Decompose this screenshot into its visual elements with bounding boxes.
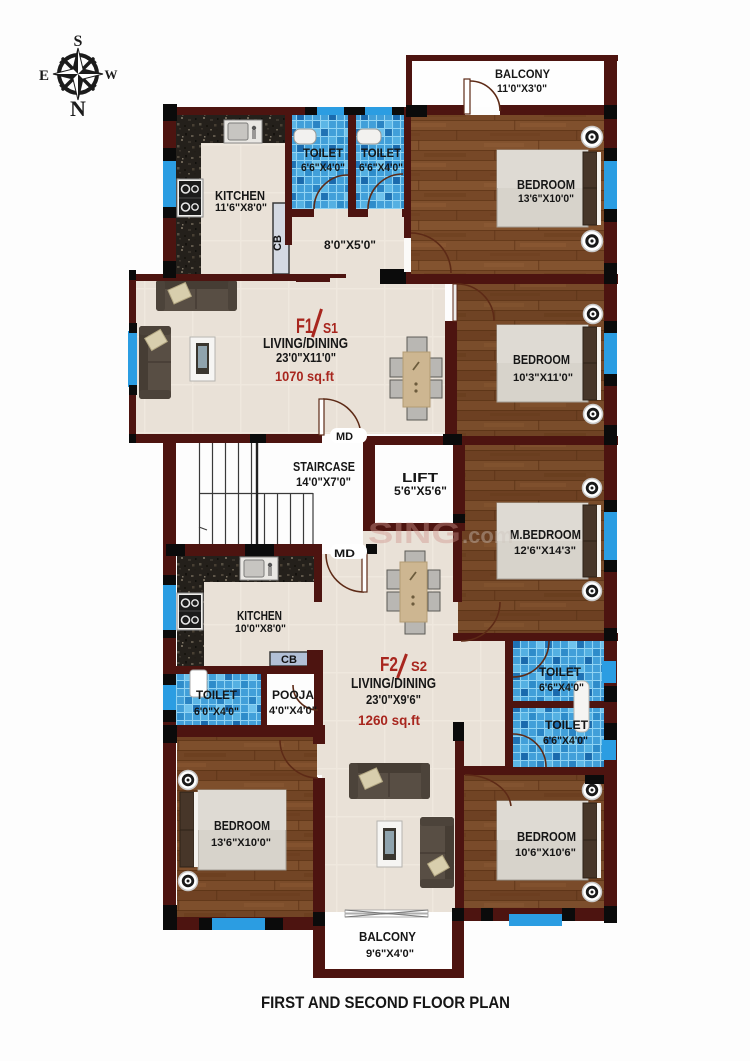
svg-text:MD: MD <box>336 431 353 443</box>
svg-text:BEDROOM: BEDROOM <box>214 819 270 833</box>
svg-text:BALCONY: BALCONY <box>359 930 417 944</box>
svg-text:TOILET: TOILET <box>303 146 344 160</box>
svg-text:FIRST AND SECOND FLOOR PLAN: FIRST AND SECOND FLOOR PLAN <box>261 993 510 1012</box>
svg-text:11'6"X8'0": 11'6"X8'0" <box>215 202 267 214</box>
svg-text:.com: .com <box>462 523 513 548</box>
svg-text:TOILET: TOILET <box>361 146 402 160</box>
svg-text:1260 sq.ft: 1260 sq.ft <box>358 712 420 728</box>
svg-text:TOILET: TOILET <box>539 665 582 679</box>
svg-text:CB: CB <box>281 654 297 666</box>
svg-text:MD: MD <box>334 548 355 560</box>
svg-text:SING: SING <box>368 517 461 550</box>
svg-text:TOILET: TOILET <box>196 688 238 702</box>
svg-text:6'6"X4'0": 6'6"X4'0" <box>543 735 588 747</box>
svg-text:N: N <box>70 96 86 121</box>
svg-text:BALCONY: BALCONY <box>495 67 550 81</box>
svg-text:BEDROOM: BEDROOM <box>517 178 575 192</box>
svg-text:F2: F2 <box>380 654 398 676</box>
svg-text:M.BEDROOM: M.BEDROOM <box>510 528 581 542</box>
svg-text:W: W <box>105 67 118 82</box>
svg-text:CB: CB <box>272 235 284 251</box>
svg-text:23'0"X9'6": 23'0"X9'6" <box>366 692 421 707</box>
svg-text:13'6"X10'0": 13'6"X10'0" <box>518 193 574 205</box>
svg-text:STAIRCASE: STAIRCASE <box>293 460 355 474</box>
svg-text:LIVING/DINING: LIVING/DINING <box>351 675 436 692</box>
svg-text:BEDROOM: BEDROOM <box>513 353 570 367</box>
svg-text:14'0"X7'0": 14'0"X7'0" <box>296 477 351 489</box>
svg-text:10'0"X8'0": 10'0"X8'0" <box>235 623 286 635</box>
svg-text:10'3"X11'0": 10'3"X11'0" <box>513 372 573 384</box>
svg-text:4'0"X4'0": 4'0"X4'0" <box>269 705 317 717</box>
svg-text:KITCHEN: KITCHEN <box>215 189 265 203</box>
svg-text:12'6"X14'3": 12'6"X14'3" <box>514 545 576 557</box>
svg-text:1070 sq.ft: 1070 sq.ft <box>275 368 334 384</box>
svg-text:TOILET: TOILET <box>545 718 589 732</box>
svg-text:LIFT: LIFT <box>402 470 438 485</box>
svg-text:11'0"X3'0": 11'0"X3'0" <box>497 83 547 95</box>
svg-text:8'0"X5'0": 8'0"X5'0" <box>324 238 376 252</box>
svg-text:9'6"X4'0": 9'6"X4'0" <box>366 948 414 960</box>
svg-text:6'6"X4'0": 6'6"X4'0" <box>359 162 403 174</box>
svg-text:BEDROOM: BEDROOM <box>517 830 576 844</box>
svg-text:6'6"X4'0": 6'6"X4'0" <box>301 162 345 174</box>
svg-text:S: S <box>74 33 83 50</box>
svg-text:KITCHEN: KITCHEN <box>237 609 282 623</box>
svg-text:S2: S2 <box>411 658 427 674</box>
svg-text:6'6"X4'0": 6'6"X4'0" <box>539 682 584 694</box>
svg-text:23'0"X11'0": 23'0"X11'0" <box>276 350 336 365</box>
svg-text:13'6"X10'0": 13'6"X10'0" <box>211 837 271 849</box>
svg-text:POOJA: POOJA <box>272 688 314 702</box>
svg-text:6'0"X4'0": 6'0"X4'0" <box>194 706 239 718</box>
svg-text:E: E <box>39 68 49 84</box>
svg-text:5'6"X5'6": 5'6"X5'6" <box>394 486 447 498</box>
svg-text:10'6"X10'6": 10'6"X10'6" <box>515 847 576 859</box>
